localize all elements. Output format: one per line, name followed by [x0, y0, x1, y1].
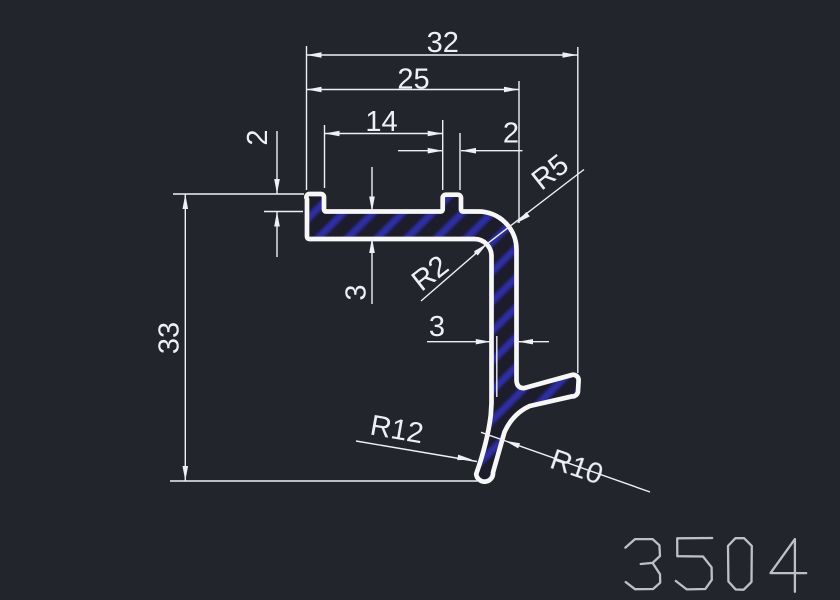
svg-text:33: 33: [154, 322, 186, 354]
svg-text:14: 14: [365, 106, 397, 138]
svg-text:3: 3: [429, 311, 445, 343]
svg-text:25: 25: [397, 64, 429, 96]
svg-text:32: 32: [427, 27, 459, 59]
svg-text:3: 3: [341, 284, 373, 300]
svg-text:2: 2: [503, 118, 519, 150]
svg-text:2: 2: [242, 129, 274, 145]
